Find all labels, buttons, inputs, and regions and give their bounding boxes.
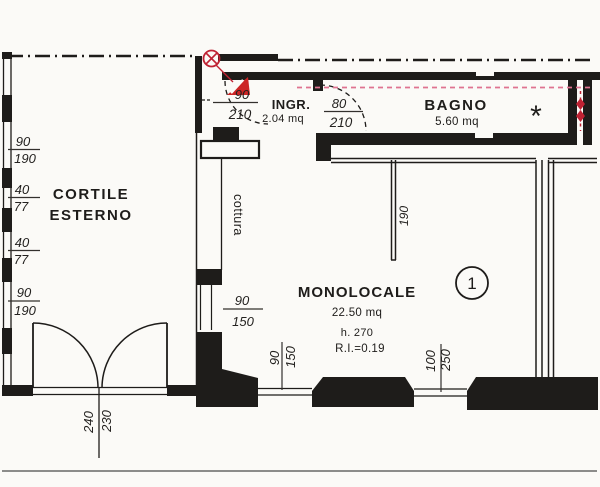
dim-west-window-height: 150 bbox=[232, 314, 254, 329]
monolocale-area: 22.50 mq bbox=[332, 307, 382, 319]
dim-west-window-width: 90 bbox=[235, 293, 250, 308]
monolocale-height: h. 270 bbox=[341, 327, 373, 339]
bagno-asterisk: * bbox=[530, 100, 542, 133]
dim-partition-length: 190 bbox=[397, 206, 411, 226]
dim-left-w2-width: 40 bbox=[15, 182, 30, 197]
ingresso-label: INGR. bbox=[272, 97, 311, 112]
boundary-dashdot-lines bbox=[8, 56, 594, 60]
floor-plan: CORTILE ESTERNO INGR. 2.04 mq BAGNO 5.60… bbox=[0, 0, 600, 487]
unit-number-badge: 1 bbox=[456, 267, 488, 299]
dim-south-window2-height: 250 bbox=[438, 348, 453, 371]
dim-left-w1-height: 190 bbox=[14, 151, 36, 166]
cortile-label-line2: ESTERNO bbox=[49, 207, 132, 224]
dim-south-window1-width: 90 bbox=[267, 350, 282, 365]
dim-south-window2-width: 100 bbox=[423, 349, 438, 371]
dim-left-w3-height: 77 bbox=[14, 252, 29, 267]
monolocale-label: MONOLOCALE bbox=[298, 284, 416, 301]
dim-entry-door-height: 210 bbox=[228, 107, 252, 122]
floor-plan-drawing: CORTILE ESTERNO INGR. 2.04 mq BAGNO 5.60… bbox=[0, 0, 600, 487]
courtyard-double-door bbox=[33, 323, 167, 458]
dim-left-w2-height: 77 bbox=[14, 199, 29, 214]
monolocale-north-face bbox=[331, 159, 597, 163]
dim-entry-door-width: 90 bbox=[235, 87, 250, 102]
dim-courtyard-door-height: 230 bbox=[99, 409, 114, 432]
dim-left-w4-width: 90 bbox=[17, 285, 32, 300]
dim-left-w4-height: 190 bbox=[14, 303, 36, 318]
monolocale-south-wall bbox=[258, 377, 598, 410]
bagno-area: 5.60 mq bbox=[435, 116, 479, 128]
dim-bagno-door-width: 80 bbox=[332, 96, 347, 111]
dim-bagno-door-height: 210 bbox=[329, 115, 353, 130]
dim-left-w3-width: 40 bbox=[15, 235, 30, 250]
east-walls bbox=[536, 160, 554, 378]
cortile-west-wall bbox=[2, 52, 12, 390]
cortile-label-line1: CORTILE bbox=[53, 186, 129, 203]
monolocale-ratio: R.I.=0.19 bbox=[335, 343, 385, 355]
dim-courtyard-door-width: 240 bbox=[81, 410, 96, 433]
bagno-label: BAGNO bbox=[424, 97, 487, 114]
partition-wall bbox=[391, 160, 396, 260]
dim-south-window1-height: 150 bbox=[283, 345, 298, 367]
unit-number: 1 bbox=[467, 274, 476, 293]
cottura-niche bbox=[201, 141, 259, 158]
cottura-label: cottura bbox=[231, 194, 245, 236]
dim-left-w1-width: 90 bbox=[16, 134, 31, 149]
ingresso-area: 2.04 mq bbox=[262, 113, 304, 125]
